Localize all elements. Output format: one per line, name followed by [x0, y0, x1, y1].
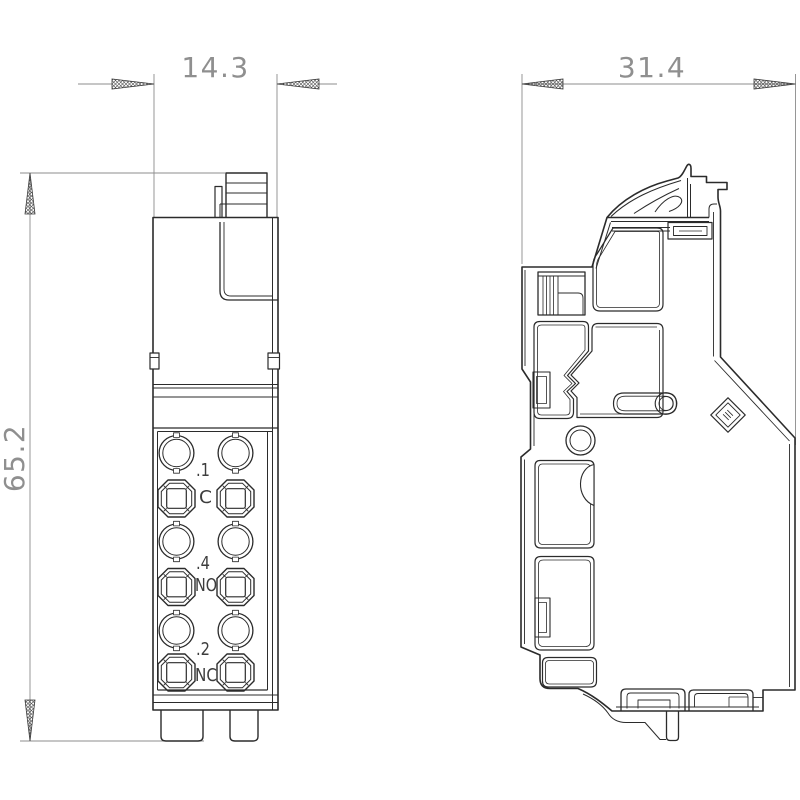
technical-drawing-canvas: 14.3 31.4 65.2	[0, 0, 800, 800]
extension-lines-side-depth	[522, 74, 796, 445]
terminal-number-2: .2	[196, 639, 210, 660]
terminal-function-c: C	[199, 487, 212, 508]
screw-terminal	[217, 654, 254, 691]
front-body-outline	[153, 218, 278, 711]
front-side-clips	[150, 353, 280, 369]
side-left-cavity-middle	[535, 461, 594, 549]
side-bottom-profile	[583, 694, 763, 741]
wire-hole	[159, 433, 194, 473]
screw-terminal	[217, 569, 254, 606]
front-housing-seam	[153, 385, 278, 398]
side-guide-ring	[566, 426, 595, 455]
dimension-side-depth: 31.4	[522, 51, 796, 445]
side-body-outline	[521, 164, 795, 711]
side-diamond-detail	[711, 398, 746, 433]
terminal-number-1: .1	[196, 460, 210, 481]
side-din-clamp-cavity	[543, 658, 597, 688]
side-bottom-slot-blocks	[621, 689, 753, 711]
front-view: .1 C .4 NO .2 NC	[150, 173, 280, 741]
side-bottom-foot	[667, 711, 679, 741]
wire-hole	[159, 610, 194, 650]
front-mounting-feet	[161, 710, 258, 741]
arrowhead-icon	[25, 700, 35, 741]
release-latch	[611, 178, 691, 217]
dimension-value-front-height: 65.2	[0, 424, 31, 492]
front-upper-block	[220, 222, 278, 300]
screw-terminal	[158, 480, 195, 517]
terminal-function-no: NO	[195, 575, 217, 596]
screw-terminal	[217, 480, 254, 517]
screw-terminal	[158, 654, 195, 691]
wire-hole	[218, 610, 253, 650]
side-left-cavity-upper	[534, 322, 589, 419]
wire-hole	[159, 521, 194, 561]
wire-hole	[218, 521, 253, 561]
side-bus-connector-block	[538, 272, 585, 315]
arrowhead-icon	[277, 79, 319, 89]
arrowhead-icon	[25, 173, 35, 214]
terminal-number-4: .4	[196, 553, 210, 574]
side-wall-inner-lines	[525, 212, 790, 707]
dimension-front-width: 14.3	[78, 51, 337, 217]
extension-lines-front-height	[20, 173, 225, 741]
screw-terminal	[158, 569, 195, 606]
dimension-front-height: 65.2	[0, 173, 225, 741]
side-pill-slot	[614, 393, 677, 415]
wire-hole	[218, 433, 253, 473]
terminal-labels: .1 C .4 NO .2 NC	[195, 460, 217, 686]
terminal-function-nc: NC	[195, 665, 217, 686]
side-upper-cavity	[593, 228, 663, 311]
front-top-connector-tab	[215, 173, 267, 218]
arrowhead-icon	[754, 79, 796, 89]
arrowhead-icon	[112, 79, 154, 89]
side-top-edge-inner	[611, 204, 717, 222]
side-view	[521, 164, 795, 740]
arrowhead-icon	[522, 79, 563, 89]
dimension-drawing: 14.3 31.4 65.2	[0, 0, 800, 800]
side-left-cavity-lower	[535, 557, 594, 651]
dimension-value-front-width: 14.3	[181, 51, 249, 84]
dimension-value-side-depth: 31.4	[618, 51, 686, 84]
